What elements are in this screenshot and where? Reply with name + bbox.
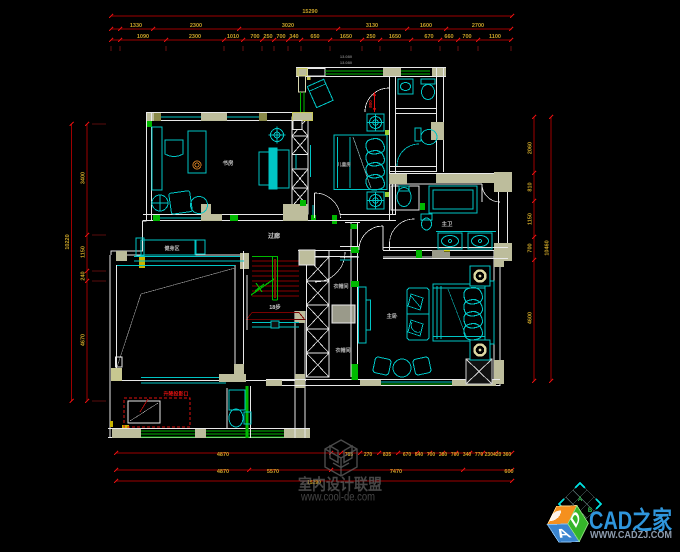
svg-text:230420: 230420 bbox=[485, 452, 502, 458]
svg-text:过廊: 过廊 bbox=[268, 232, 280, 240]
svg-text:WWW.CADZJ.COM: WWW.CADZJ.COM bbox=[590, 530, 672, 541]
svg-text:1650: 1650 bbox=[389, 34, 401, 40]
svg-text:儿童房: 儿童房 bbox=[336, 161, 351, 168]
svg-text:700: 700 bbox=[462, 34, 471, 40]
svg-text:360: 360 bbox=[503, 452, 512, 458]
svg-text:1600: 1600 bbox=[420, 23, 432, 29]
svg-text:270: 270 bbox=[364, 452, 373, 458]
svg-text:700: 700 bbox=[451, 452, 460, 458]
svg-text:1330: 1330 bbox=[130, 23, 142, 29]
svg-text:700: 700 bbox=[427, 452, 436, 458]
svg-text:健身区: 健身区 bbox=[164, 245, 179, 252]
svg-text:670: 670 bbox=[424, 34, 433, 40]
svg-text:340: 340 bbox=[289, 34, 298, 40]
svg-text:4600: 4600 bbox=[528, 312, 534, 324]
svg-text:2300: 2300 bbox=[189, 34, 201, 40]
svg-text:衣帽间: 衣帽间 bbox=[333, 283, 348, 290]
svg-text:340: 340 bbox=[463, 452, 472, 458]
svg-text:2300: 2300 bbox=[190, 23, 202, 29]
svg-text:250: 250 bbox=[366, 34, 375, 40]
svg-text:250: 250 bbox=[263, 34, 272, 40]
svg-text:7470: 7470 bbox=[390, 469, 402, 475]
svg-text:10460: 10460 bbox=[545, 240, 551, 255]
svg-text:4870: 4870 bbox=[217, 452, 229, 458]
svg-text:主卧: 主卧 bbox=[386, 312, 398, 320]
svg-text:15290: 15290 bbox=[302, 9, 317, 15]
svg-text:3400: 3400 bbox=[81, 172, 87, 184]
svg-text:1650: 1650 bbox=[340, 34, 352, 40]
svg-text:700: 700 bbox=[250, 34, 259, 40]
svg-text:13.080: 13.080 bbox=[340, 60, 353, 65]
svg-text:650: 650 bbox=[310, 34, 319, 40]
svg-text:A: A bbox=[578, 497, 583, 503]
svg-text:280: 280 bbox=[439, 452, 448, 458]
svg-text:衣帽间: 衣帽间 bbox=[335, 347, 350, 354]
svg-text:540: 540 bbox=[415, 452, 424, 458]
svg-text:1100: 1100 bbox=[489, 34, 501, 40]
svg-text:800: 800 bbox=[368, 100, 373, 108]
svg-text:3020: 3020 bbox=[282, 23, 294, 29]
svg-text:18步: 18步 bbox=[269, 303, 281, 311]
svg-text:670: 670 bbox=[403, 452, 412, 458]
svg-text:2700: 2700 bbox=[472, 23, 484, 29]
svg-text:835: 835 bbox=[383, 452, 392, 458]
svg-text:2060: 2060 bbox=[528, 142, 534, 154]
svg-text:13.080: 13.080 bbox=[340, 54, 353, 59]
svg-text:4670: 4670 bbox=[81, 334, 87, 346]
svg-text:600: 600 bbox=[504, 469, 513, 475]
svg-text:10220: 10220 bbox=[65, 234, 71, 249]
svg-text:3130: 3130 bbox=[366, 23, 378, 29]
svg-text:1150: 1150 bbox=[81, 246, 87, 258]
svg-text:5570: 5570 bbox=[267, 469, 279, 475]
svg-text:主卫: 主卫 bbox=[441, 220, 453, 228]
svg-text:4870: 4870 bbox=[217, 469, 229, 475]
svg-text:1010: 1010 bbox=[227, 34, 239, 40]
svg-text:660: 660 bbox=[444, 34, 453, 40]
svg-text:升降投影口: 升降投影口 bbox=[163, 391, 188, 398]
svg-text:1090: 1090 bbox=[137, 34, 149, 40]
svg-text:810: 810 bbox=[528, 182, 534, 191]
svg-text:www.cool-de.com: www.cool-de.com bbox=[300, 492, 375, 504]
svg-text:770: 770 bbox=[475, 452, 484, 458]
svg-text:700: 700 bbox=[528, 243, 534, 252]
svg-text:1150: 1150 bbox=[528, 213, 534, 225]
svg-text:书房: 书房 bbox=[222, 159, 234, 167]
svg-text:240: 240 bbox=[81, 271, 87, 280]
svg-text:700: 700 bbox=[276, 34, 285, 40]
